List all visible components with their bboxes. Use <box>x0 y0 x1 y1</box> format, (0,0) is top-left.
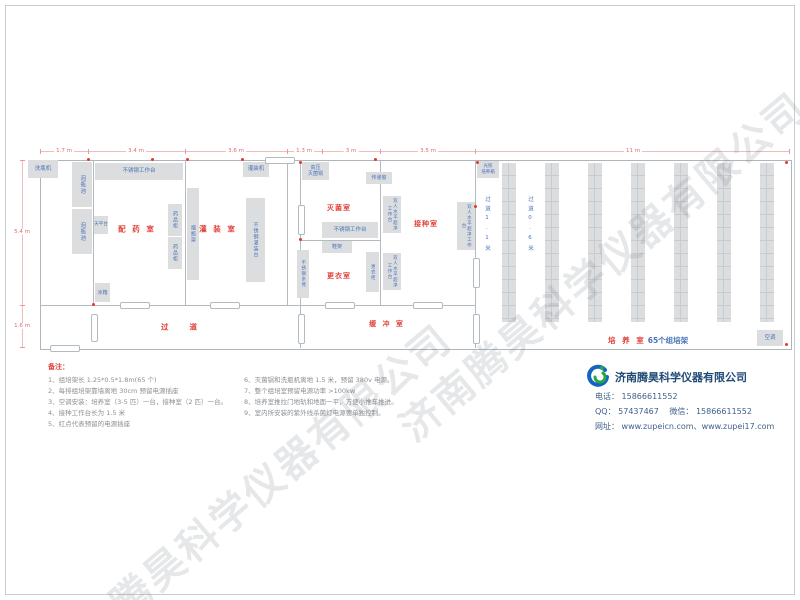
room-label-inoculation: 接种室 <box>414 219 438 229</box>
dim-label: 3 m <box>344 148 359 154</box>
power-outlet-dot <box>87 158 90 161</box>
floorplan-page: 济南腾昊科学仪器有限公司 济南腾昊科学仪器有限公司 洗瓶机 泡瓶池 泡瓶池 不锈… <box>0 0 800 600</box>
culture-rack-column <box>545 163 559 322</box>
balance-table: 天平台 <box>94 216 108 234</box>
dim-tick <box>380 149 381 154</box>
filling-machine: 灌装机 <box>243 162 269 177</box>
door <box>298 314 305 344</box>
culture-rack-column <box>760 163 774 322</box>
dim-label: 3.5 m <box>418 148 438 154</box>
medicine-cabinet: 药品柜 <box>168 237 182 269</box>
bottle-rack: 摆瓶架 <box>187 188 199 280</box>
laminar-flow-bench: 双人水平超净工作台 <box>383 196 401 233</box>
stainless-filling-table: 不锈钢灌装台 <box>246 198 265 282</box>
aisle-label-2: 过道0.6米 <box>526 196 534 266</box>
room-label-filling: 灌 装 室 <box>199 224 237 235</box>
room-label-corridor: 过 道 <box>161 322 199 333</box>
power-outlet-dot <box>785 343 788 346</box>
power-outlet-dot <box>241 158 244 161</box>
dim-label: 11 m <box>624 148 642 154</box>
refrigerator: 冰箱 <box>95 283 110 302</box>
note-item: 4、接种工作台长为 1.5 米 <box>48 407 125 417</box>
door <box>265 157 295 164</box>
note-item: 6、灭菌锅和洗瓶机离地 1.5 米，预留 380v 电源。 <box>244 374 394 384</box>
culture-rack-column <box>631 163 645 322</box>
laminar-flow-bench: 双人水平超净工作台 <box>457 202 475 250</box>
power-outlet-dot <box>92 303 95 306</box>
note-item: 2、每排组培架靠墙离地 30cm 预留电源插座 <box>48 385 178 395</box>
air-conditioner: 空调 <box>757 330 783 346</box>
note-item: 1、组培架长 1.25*0.5*1.8m(65 个) <box>48 374 157 384</box>
locker: 更衣柜 <box>366 252 379 292</box>
room-label-prep: 配 药 室 <box>118 224 156 235</box>
medicine-cabinet: 药品柜 <box>168 204 182 236</box>
dim-tick <box>475 149 476 154</box>
power-outlet-dot <box>476 161 479 164</box>
dim-label: 5.4 m <box>12 229 32 235</box>
dim-label: 3.4 m <box>126 148 146 154</box>
stainless-worktable: 不锈钢工作台 <box>95 163 183 180</box>
room-label-sterilization: 灭菌室 <box>327 203 351 213</box>
dim-label: 3.6 m <box>226 148 246 154</box>
laminar-flow-bench: 双人水平超净工作台 <box>383 253 401 290</box>
power-outlet-dot <box>374 158 377 161</box>
door <box>120 302 150 309</box>
wall <box>185 160 186 306</box>
note-item: 8、培养室推拉门地轨和地面一平，方便小推车推进。 <box>244 396 398 406</box>
shoe-rack: 鞋架 <box>322 241 352 253</box>
dim-tick <box>20 160 25 161</box>
dim-tick <box>185 149 186 154</box>
dimension-line <box>22 160 23 348</box>
power-outlet-dot <box>151 158 154 161</box>
power-outlet-dot <box>474 205 477 208</box>
autoclave: 高压 灭菌锅 <box>302 162 329 180</box>
door <box>210 302 240 309</box>
stainless-bench: 不锈钢条凳 <box>297 250 309 298</box>
dim-tick <box>40 149 41 154</box>
aisle-label-1: 过道1.1米 <box>483 196 491 266</box>
wall <box>40 305 475 306</box>
company-phone: 电话： 15866611552 <box>595 391 678 402</box>
door <box>325 302 355 309</box>
dim-label: 1.7 m <box>54 148 74 154</box>
door <box>473 258 480 288</box>
dim-tick <box>322 149 323 154</box>
bottle-soaking-pool: 泡瓶池 <box>72 209 92 254</box>
dim-label: 1.6 m <box>12 323 32 329</box>
lighted-incubator: 光照 培养箱 <box>477 161 499 178</box>
door <box>413 302 443 309</box>
room-label-culture: 培 养 室65个组培架 <box>608 335 688 346</box>
power-outlet-dot <box>299 238 302 241</box>
power-outlet-dot <box>186 158 189 161</box>
bottle-washer: 洗瓶机 <box>28 160 58 178</box>
note-item: 7、整个组培室预留电源功率 >100kw <box>244 385 355 395</box>
dim-label: 1.3 m <box>294 148 314 154</box>
note-item: 9、室内所安装的紫外线杀菌灯电源要单独控制。 <box>244 407 385 417</box>
door <box>50 345 80 352</box>
dim-tick <box>20 305 25 306</box>
wall <box>287 160 288 306</box>
culture-rack-column <box>674 163 688 322</box>
dimension-line <box>40 151 790 152</box>
door <box>298 205 305 235</box>
room-label-dressing: 更衣室 <box>327 271 351 281</box>
company-name: 济南腾昊科学仪器有限公司 <box>615 369 747 385</box>
culture-rack-column <box>717 163 731 322</box>
culture-rack-column <box>502 163 516 322</box>
note-item: 5、红点代表预留的电源插座 <box>48 418 130 428</box>
stainless-worktable: 不锈钢工作台 <box>322 222 378 238</box>
company-qq-wechat: QQ： 57437467 微信： 15866611552 <box>595 406 752 417</box>
notes-title: 备注： <box>48 362 69 372</box>
bottle-soaking-pool: 泡瓶池 <box>72 162 92 207</box>
culture-rack-column <box>588 163 602 322</box>
company-website: 网址： www.zupeicn.com、www.zupei17.com <box>595 421 774 432</box>
door <box>91 314 98 342</box>
company-logo <box>586 364 610 388</box>
note-item: 3、空调安装：培养室（3-5 匹）一台，接种室（2 匹）一台。 <box>48 396 227 406</box>
power-outlet-dot <box>299 161 302 164</box>
door <box>473 314 480 344</box>
dim-tick <box>789 149 790 154</box>
dim-tick <box>20 347 25 348</box>
power-outlet-dot <box>785 161 788 164</box>
room-label-buffer: 缓 冲 室 <box>369 319 405 329</box>
dim-tick <box>88 149 89 154</box>
pass-through-window: 传递窗 <box>366 172 392 184</box>
dim-tick <box>287 149 288 154</box>
